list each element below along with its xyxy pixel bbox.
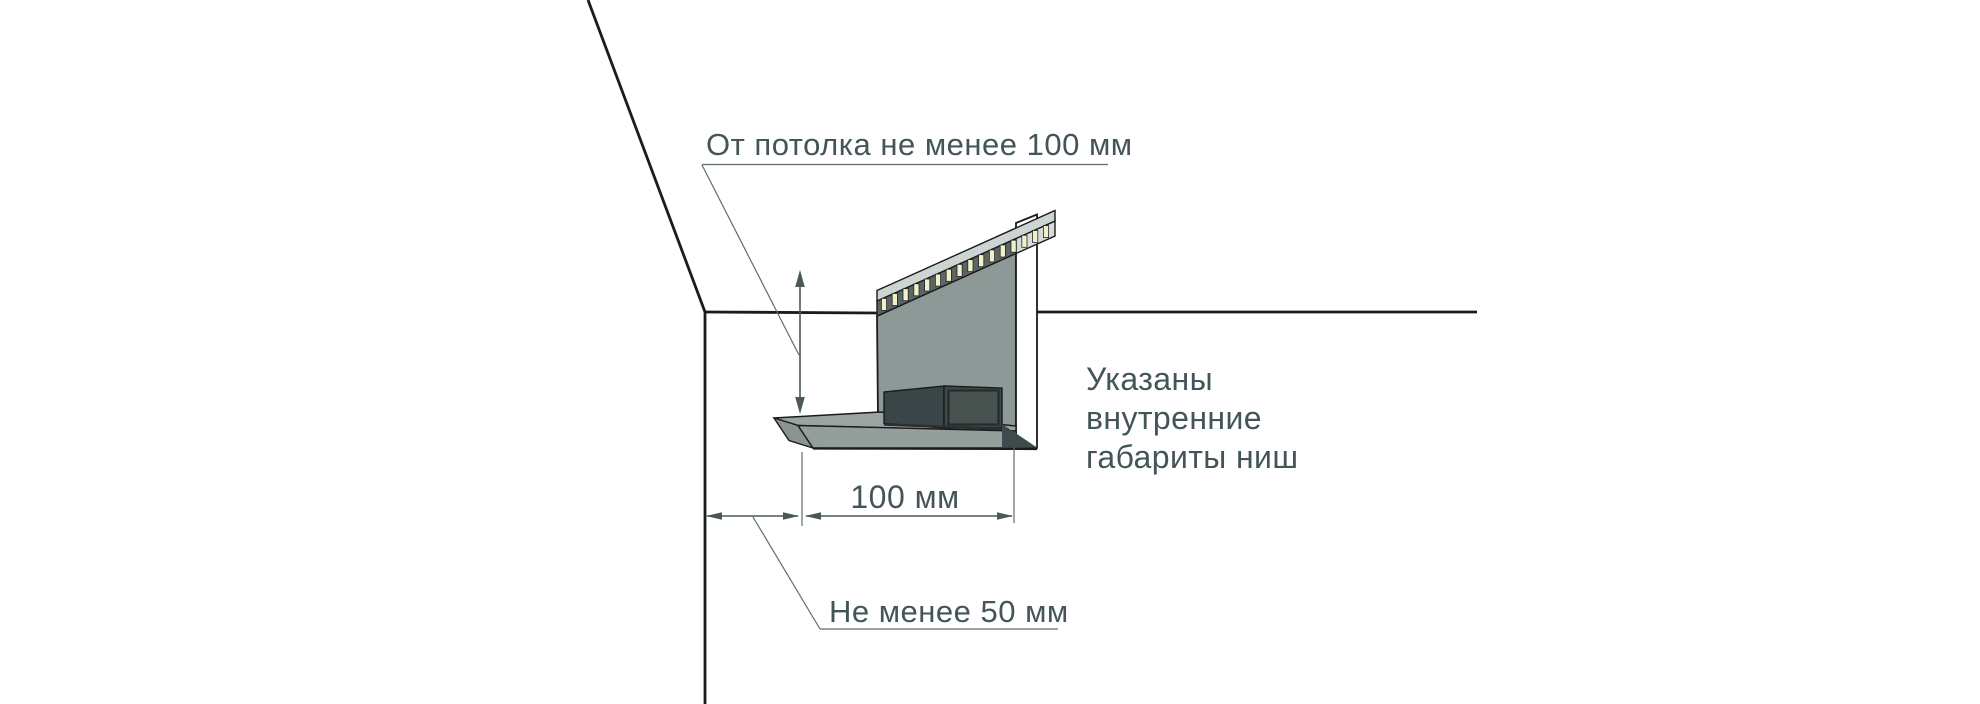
led-diode	[881, 298, 886, 310]
diagram-canvas: От потолка не менее 100 мм 100 мм Не мен…	[0, 0, 1980, 704]
arrowhead-down	[795, 397, 805, 414]
niche-width-arrowhead-left	[805, 512, 821, 520]
shelf-bottom-edge	[813, 449, 1037, 450]
led-diode	[968, 260, 973, 272]
niche-width-label: 100 мм	[850, 479, 959, 516]
wall-offset-arrowhead-left	[706, 512, 722, 520]
led-diode	[1043, 226, 1048, 238]
led-diode	[1033, 231, 1038, 243]
niche-width-arrowhead-right	[997, 512, 1013, 520]
led-diode	[914, 284, 919, 296]
led-diode	[957, 264, 962, 276]
note-line-1: Указаны	[1086, 360, 1298, 399]
inner-dimensions-note: Указаны внутренние габариты ниш	[1086, 360, 1298, 477]
arrowhead-up	[795, 270, 805, 287]
ceiling-offset-label: От потолка не менее 100 мм	[706, 127, 1133, 163]
led-diode	[1011, 240, 1016, 252]
ceiling-line-left	[705, 312, 877, 313]
note-line-3: габариты ниш	[1086, 438, 1298, 477]
led-diode	[903, 289, 908, 301]
spot-box-side-face	[884, 386, 944, 428]
wall-corner-diagonal-line	[588, 0, 705, 312]
led-diode	[935, 274, 940, 286]
led-diode	[925, 279, 930, 291]
wall-offset-leader-line	[753, 517, 820, 629]
ceiling-offset-leader-line	[702, 165, 799, 355]
led-diode	[979, 255, 984, 267]
led-diode	[1022, 235, 1027, 247]
led-diode	[946, 269, 951, 281]
led-diode	[989, 250, 994, 262]
led-diode	[892, 294, 897, 306]
wall-offset-arrowhead-right	[783, 512, 799, 520]
spot-box-front-inset	[949, 391, 999, 425]
note-line-2: внутренние	[1086, 399, 1298, 438]
led-diode	[1000, 245, 1005, 257]
wall-offset-label: Не менее 50 мм	[829, 594, 1069, 630]
